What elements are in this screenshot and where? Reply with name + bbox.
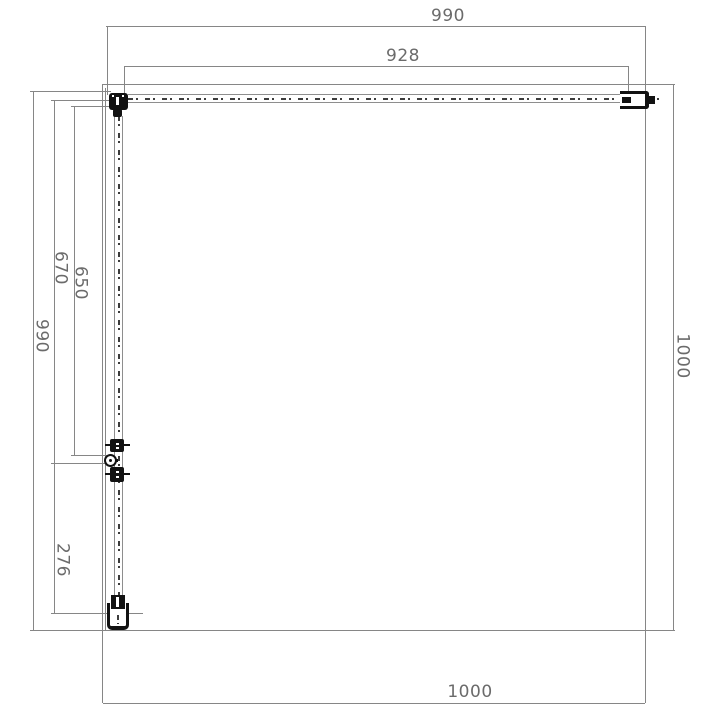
hinge-upper-screw — [116, 443, 119, 445]
hinge-lower-screw — [116, 471, 119, 473]
tray-left-edge-inner — [105, 88, 106, 630]
dim-text-670: 670 — [52, 251, 69, 285]
hinge-lower-screw2 — [116, 476, 119, 478]
corner-screw-left — [112, 95, 114, 97]
dim-line-990-top — [106, 26, 645, 27]
ext-line-650-top — [71, 106, 113, 107]
drawing-sheet: 990 928 1000 990 670 650 276 1000 — [0, 0, 720, 720]
hinge-upper — [110, 439, 124, 452]
ext-line-276-bottom — [51, 613, 143, 614]
tray-bottom-edge — [30, 630, 675, 631]
tray-right-edge — [645, 26, 646, 703]
hinge-upper-screw2 — [116, 447, 119, 449]
dim-text-990-top: 990 — [431, 8, 465, 25]
dim-text-928: 928 — [386, 48, 420, 65]
door-knob-center — [109, 459, 112, 462]
dim-line-990-left — [33, 91, 34, 630]
corner-connector-tab — [113, 109, 122, 117]
glass-end-cap-bottom-slot — [116, 597, 119, 607]
ext-line-928-left — [124, 66, 125, 93]
tray-left-edge-outer — [102, 84, 103, 703]
ext-line-990-left-top — [30, 91, 111, 92]
wall-profile-right-lug — [648, 96, 655, 104]
glass-panel-left — [114, 116, 123, 600]
dim-line-276 — [54, 463, 55, 613]
ext-line-928-right — [628, 66, 629, 93]
dim-text-1000-right: 1000 — [674, 333, 691, 378]
dim-text-990-left: 990 — [33, 319, 50, 353]
dim-text-276: 276 — [54, 543, 71, 577]
dim-line-1000-bottom — [103, 703, 645, 704]
dim-line-928 — [124, 66, 628, 67]
corner-screw-right — [122, 95, 124, 97]
corner-connector-slot — [116, 97, 119, 105]
hinge-lower — [110, 467, 124, 482]
glass-centerline-left — [118, 116, 120, 600]
ext-line-990-top-left — [107, 26, 108, 95]
glass-panel-top — [128, 94, 622, 103]
tray-top-edge — [102, 84, 675, 85]
dim-text-650: 650 — [72, 266, 89, 300]
dim-text-1000-bottom: 1000 — [447, 684, 492, 701]
glass-end-cap-right — [622, 97, 631, 103]
glass-centerline-top — [128, 98, 622, 100]
